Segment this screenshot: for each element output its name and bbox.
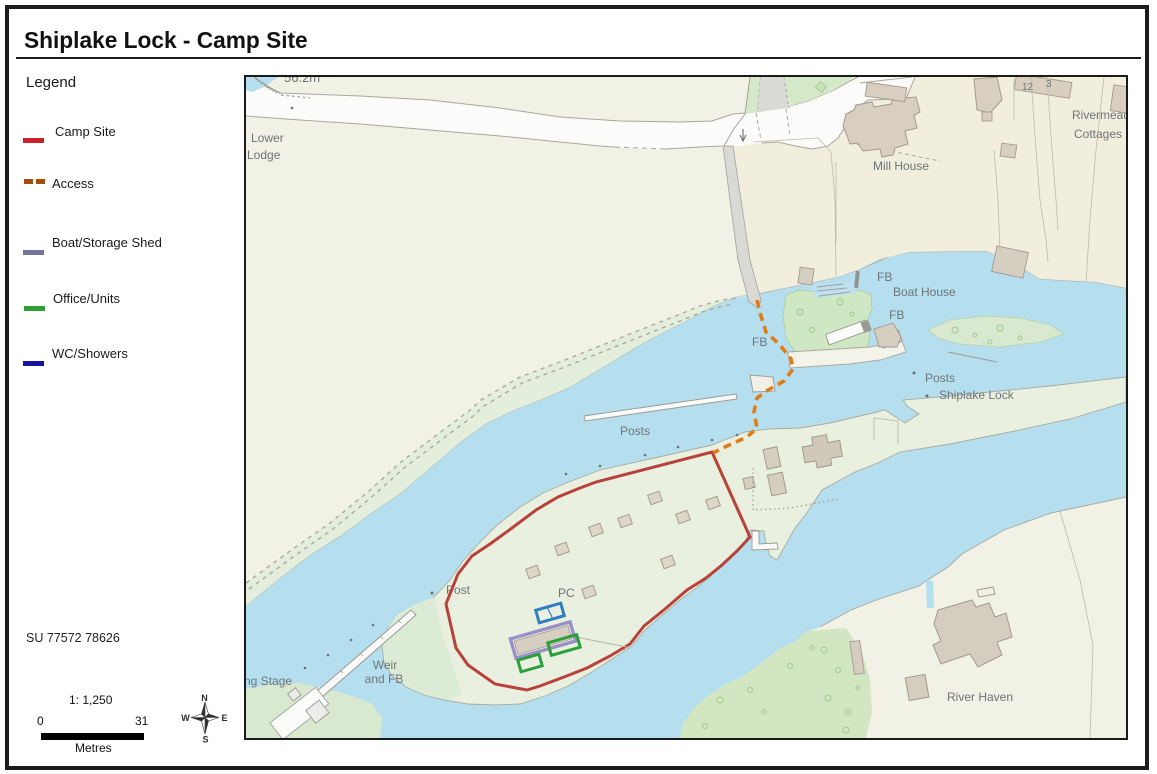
- svg-text:Lodge: Lodge: [247, 148, 281, 162]
- svg-text:ng Stage: ng Stage: [246, 674, 292, 688]
- svg-text:W: W: [181, 713, 190, 723]
- svg-text:Rivermead: Rivermead: [1072, 108, 1126, 122]
- svg-text:FB: FB: [877, 270, 892, 284]
- svg-text:12: 12: [1022, 82, 1034, 93]
- svg-text:3: 3: [1046, 79, 1052, 90]
- svg-text:S: S: [202, 735, 208, 745]
- svg-text:PC: PC: [558, 586, 575, 600]
- svg-text:Posts: Posts: [620, 424, 650, 438]
- svg-text:E: E: [221, 713, 227, 723]
- svg-text:N: N: [201, 693, 208, 703]
- svg-text:and FB: and FB: [365, 672, 404, 686]
- svg-text:FB: FB: [889, 308, 904, 322]
- svg-text:Posts: Posts: [925, 371, 955, 385]
- svg-text:Lower: Lower: [251, 131, 284, 145]
- svg-text:River Haven: River Haven: [947, 690, 1013, 704]
- svg-text:Boat House: Boat House: [893, 285, 956, 299]
- svg-text:Weir: Weir: [373, 658, 397, 672]
- svg-text:56.2m: 56.2m: [284, 77, 320, 85]
- svg-text:Shiplake Lock: Shiplake Lock: [939, 388, 1015, 402]
- svg-text:Mill House: Mill House: [873, 159, 929, 173]
- svg-text:FB: FB: [752, 335, 767, 349]
- svg-text:Cottages: Cottages: [1074, 127, 1122, 141]
